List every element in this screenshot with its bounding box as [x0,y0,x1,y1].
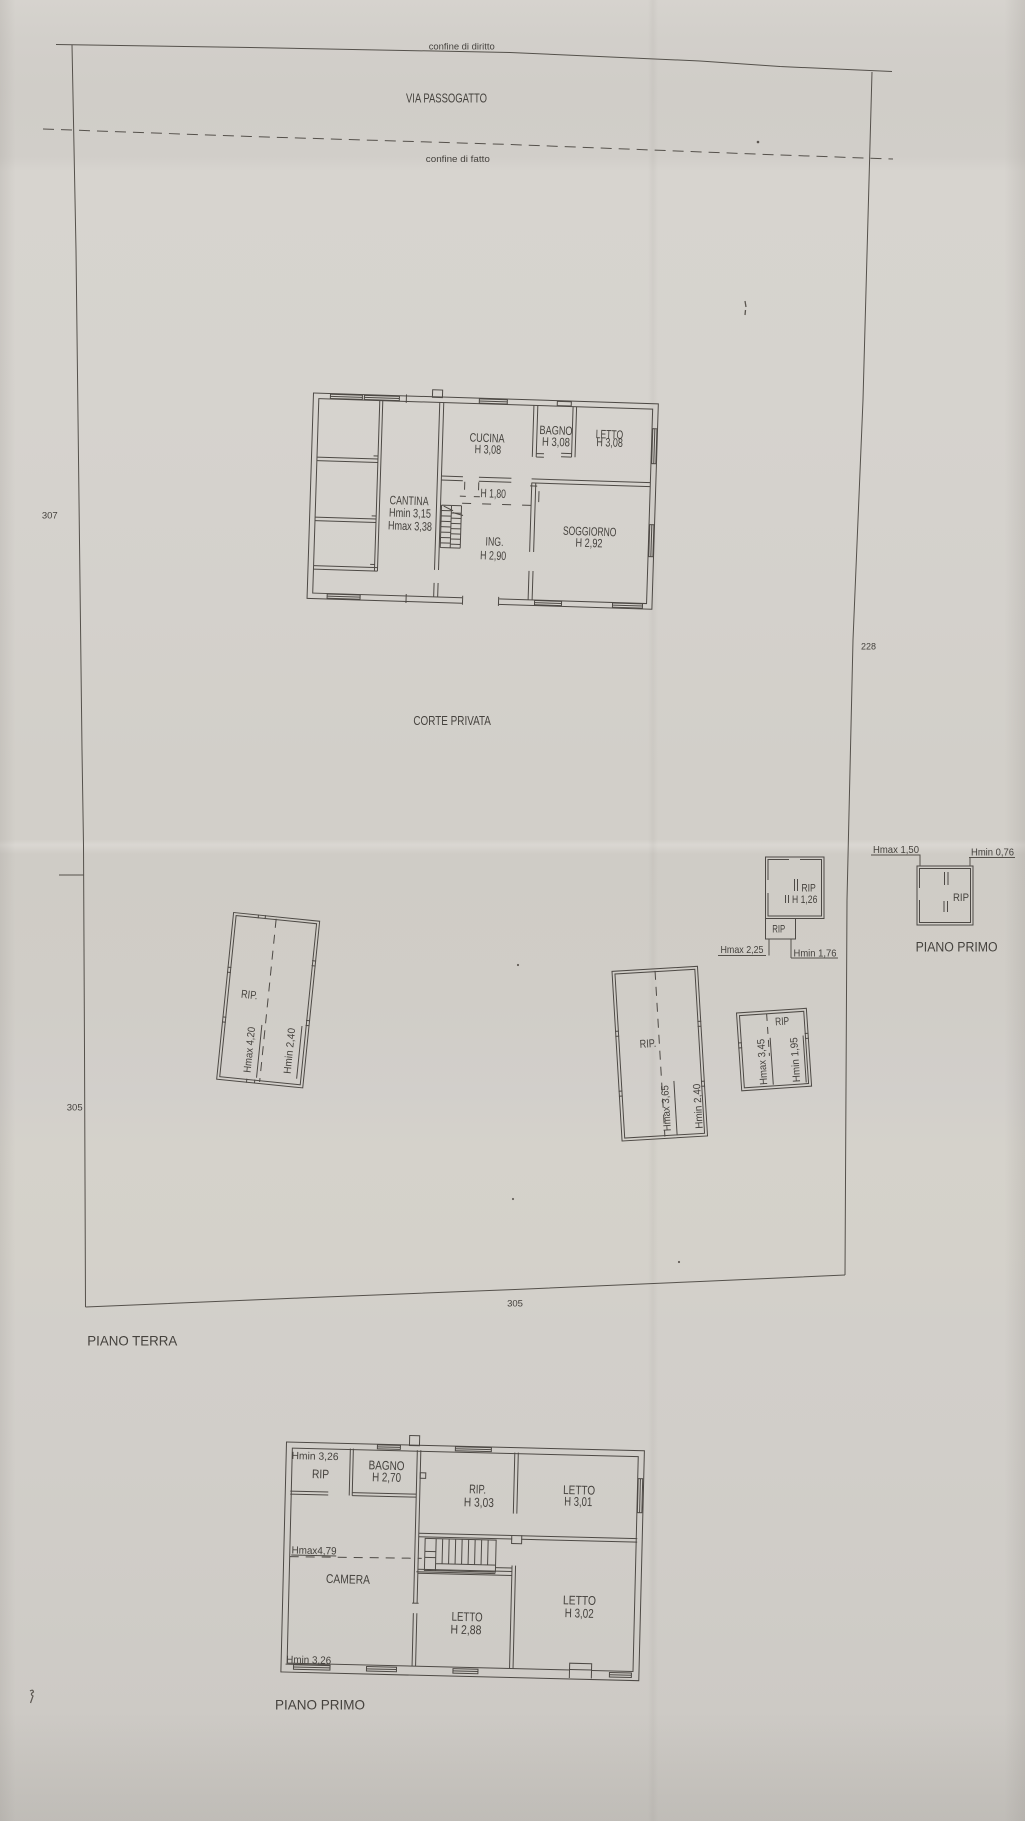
svg-text:Hmax 3,65: Hmax 3,65 [659,1085,674,1132]
svg-text:H 2,92: H 2,92 [575,536,603,551]
svg-text:RIP: RIP [312,1467,330,1481]
svg-text:CAMERA: CAMERA [326,1572,371,1587]
svg-text:Hmax 3,45: Hmax 3,45 [755,1038,770,1085]
svg-text:CORTE PRIVATA: CORTE PRIVATA [413,714,491,728]
svg-text:H 2,70: H 2,70 [372,1470,401,1485]
svg-text:PIANO PRIMO: PIANO PRIMO [275,1697,365,1713]
svg-text:Hmin 2,40: Hmin 2,40 [691,1083,706,1129]
svg-text:H 2,90: H 2,90 [480,548,507,563]
svg-text:RIP: RIP [775,1015,790,1028]
svg-text:Hmin 3,26: Hmin 3,26 [291,1450,338,1463]
svg-text:Hmax 3,38: Hmax 3,38 [388,518,433,533]
svg-text:H 3,08: H 3,08 [596,435,623,450]
svg-text:RIP.: RIP. [639,1038,656,1051]
svg-text:H 3,08: H 3,08 [474,442,501,457]
svg-text:RIP: RIP [953,892,969,904]
svg-text:Hmin 2,40: Hmin 2,40 [282,1027,299,1074]
svg-text:PIANO PRIMO: PIANO PRIMO [916,940,998,955]
svg-text:Hmax 2,25: Hmax 2,25 [721,944,764,956]
svg-text:RIP: RIP [772,924,785,936]
svg-text:confine di fatto: confine di fatto [426,154,490,165]
svg-text:H 1,80: H 1,80 [480,486,506,501]
svg-text:305: 305 [507,1299,523,1310]
svg-text:Hmax 1,50: Hmax 1,50 [873,844,919,856]
svg-text:confine di diritto: confine di diritto [429,41,495,52]
svg-text:PIANO TERRA: PIANO TERRA [87,1332,178,1348]
svg-text:Hmin 1,95: Hmin 1,95 [788,1037,803,1083]
svg-text:228: 228 [861,642,876,652]
svg-text:Hmin 0,76: Hmin 0,76 [971,847,1014,859]
svg-text:ING.: ING. [485,534,503,549]
svg-text:H 3,08: H 3,08 [542,435,571,450]
svg-text:VIA PASSOGATTO: VIA PASSOGATTO [406,92,487,106]
svg-text:305: 305 [67,1103,83,1114]
svg-text:H 2,88: H 2,88 [450,1623,481,1638]
svg-text:H 3,03: H 3,03 [464,1495,494,1510]
svg-text:H 3,01: H 3,01 [564,1495,592,1510]
svg-text:RIP.: RIP. [240,989,258,1003]
svg-text:H 3,02: H 3,02 [565,1606,594,1621]
svg-text:RIP: RIP [801,882,816,894]
svg-text:Hmax 4,20: Hmax 4,20 [242,1026,259,1073]
svg-text:H 1,26: H 1,26 [792,894,817,906]
svg-text:307: 307 [42,511,58,522]
